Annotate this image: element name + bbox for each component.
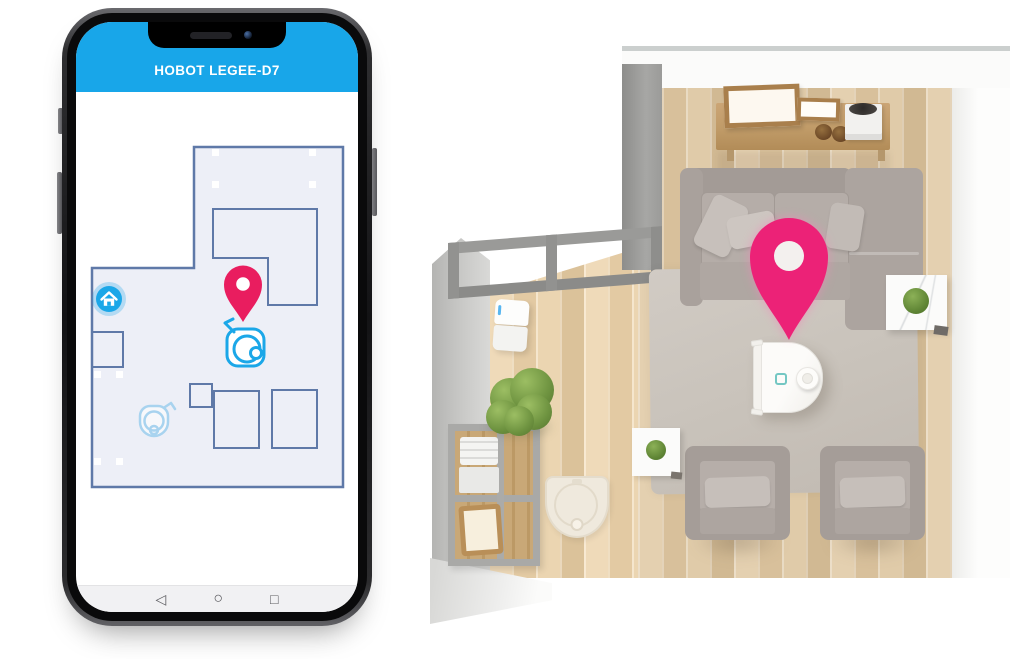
pin-hole (774, 241, 804, 271)
map-room-outline (92, 147, 343, 487)
map-home-button[interactable] (92, 282, 126, 316)
table-accent (671, 471, 683, 479)
phone-screen: HOBOT LEGEE-D7 (76, 22, 358, 612)
device-top (494, 299, 530, 326)
robot-vacuum (753, 342, 823, 413)
phone-bezel: HOBOT LEGEE-D7 (67, 13, 367, 621)
top-wall (622, 46, 1010, 88)
recents-button[interactable]: □ (270, 592, 278, 606)
towel-stack (460, 437, 498, 465)
pinecone-decor (815, 124, 832, 140)
armchair (820, 446, 925, 540)
right-wall (952, 88, 1010, 578)
chair-front (835, 508, 910, 534)
front-camera-icon (244, 31, 252, 39)
home-button[interactable]: ○ (213, 591, 223, 607)
chair-front (700, 508, 775, 534)
smartphone: HOBOT LEGEE-D7 (62, 8, 372, 626)
robot-front-bumper (754, 343, 762, 412)
shelf-board (455, 495, 533, 502)
phone-notch (148, 22, 286, 48)
location-pin (730, 200, 848, 350)
pin-body (750, 218, 828, 340)
android-nav-bar: ◁ ○ □ (76, 585, 358, 612)
lidar-center (802, 373, 813, 384)
dock-notch (572, 479, 582, 484)
floor-map[interactable] (76, 92, 358, 585)
outside-area (488, 88, 622, 248)
beam (546, 234, 557, 291)
potted-plant (903, 288, 929, 314)
dock-sensor (571, 518, 584, 531)
back-button[interactable]: ◁ (156, 592, 167, 606)
app-title: HOBOT LEGEE-D7 (76, 63, 358, 78)
floor-plant (482, 368, 556, 440)
table-leg (933, 325, 948, 336)
shelf-unit (448, 424, 540, 566)
speaker-grille-icon (190, 32, 232, 39)
sideboard-leg (878, 150, 885, 161)
picture-frame-large (723, 84, 800, 129)
potted-plant (646, 440, 666, 460)
cushion-seam (849, 252, 919, 255)
marble-side-table (886, 275, 947, 330)
armchair (685, 446, 790, 540)
robot-lidar-turret (796, 367, 819, 390)
power-button[interactable] (372, 148, 377, 216)
robot-power-button (775, 373, 787, 385)
room-render (430, 38, 1012, 630)
sideboard-leg (727, 150, 734, 161)
chair-pillow (704, 476, 770, 508)
shelf-box (459, 467, 499, 493)
bowl (849, 103, 877, 115)
led-indicator (498, 305, 502, 315)
picture-frame-small (797, 97, 841, 121)
coffee-table (632, 428, 680, 476)
screenshot-canvas: HOBOT LEGEE-D7 (0, 0, 1024, 659)
device-bottom (492, 325, 528, 352)
wooden-tray (458, 504, 503, 557)
chair-pillow (839, 476, 905, 508)
storage-box (845, 104, 882, 140)
beam (448, 242, 459, 299)
foliage (504, 406, 534, 436)
wall-sensor-device (492, 299, 530, 353)
